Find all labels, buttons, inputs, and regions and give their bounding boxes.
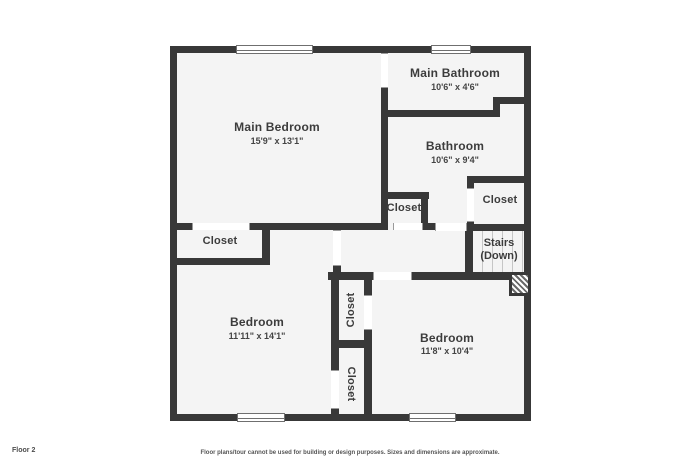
wall-mainbathroom-bottom — [384, 110, 500, 117]
room-label-bedroom-left: Bedroom — [230, 315, 284, 329]
room-label-closet-main: Closet — [203, 235, 238, 247]
window-mainbathroom-top — [431, 45, 471, 54]
window-pane — [432, 50, 470, 51]
room-dims-bedroom-left: 11'11" x 14'1" — [229, 331, 286, 341]
room-label-main-bathroom: Main Bathroom — [410, 66, 500, 80]
window-bedroomleft-bottom — [237, 413, 285, 422]
room-label-bathroom: Bathroom — [426, 139, 484, 153]
room-dims-bedroom-right: 11'8" x 10'4" — [421, 346, 473, 356]
window-pane — [237, 50, 312, 51]
wall-bathroom-step-h — [493, 97, 531, 104]
wall-closethall-stub — [421, 223, 435, 230]
room-label-closet-right: Closet — [483, 194, 518, 206]
wall-closetmain-bottom — [170, 258, 270, 265]
room-label-main-bedroom: Main Bedroom — [234, 120, 320, 134]
door-hallway — [333, 230, 341, 266]
disclaimer-text: Floor plans/tour cannot be used for buil… — [200, 450, 499, 456]
floor-label: Floor 2 — [12, 447, 35, 454]
door-bathroom-hall — [435, 223, 467, 231]
room-dims-main-bathroom: 10'6" x 4'6" — [431, 82, 479, 92]
room-label-closet-upper: Closet — [345, 293, 357, 328]
wall-exterior-bottom — [170, 414, 531, 421]
door-closetright — [467, 188, 474, 222]
wall-closetcol-divider — [331, 340, 372, 348]
chimney-hatch — [509, 272, 531, 296]
room-label-closet-hall: Closet — [387, 202, 422, 214]
window-mainbedroom-top — [236, 45, 313, 54]
window-bedroomright-bottom — [409, 413, 456, 422]
stairs-label: Stairs (Down) — [480, 237, 517, 263]
wall-closetright-top — [467, 176, 531, 183]
room-label-bedroom-right: Bedroom — [420, 331, 474, 345]
room-dims-bathroom: 10'6" x 9'4" — [431, 155, 479, 165]
door-mainbedroom-closet — [192, 223, 250, 230]
door-closethall — [393, 223, 423, 230]
stairs-direction: (Down) — [480, 250, 517, 263]
room-label-closet-lower: Closet — [345, 367, 357, 402]
wall-stairs-top — [465, 224, 531, 231]
door-mainbedroom-mainbathroom — [381, 53, 388, 88]
door-closetlower — [331, 370, 339, 409]
door-bedroomright-hall — [373, 272, 412, 280]
wall-hall-bottom — [328, 272, 531, 280]
floor-plan-page: Stairs (Down) Main Bedroom 15'9" x 13'1"… — [0, 0, 700, 467]
room-dims-main-bedroom: 15'9" x 13'1" — [251, 136, 304, 146]
window-pane — [238, 418, 284, 419]
door-closetupper — [364, 295, 372, 330]
wall-exterior-top — [170, 46, 531, 53]
window-pane — [410, 418, 455, 419]
wall-exterior-left — [170, 46, 177, 421]
stairs-name: Stairs — [480, 237, 517, 250]
